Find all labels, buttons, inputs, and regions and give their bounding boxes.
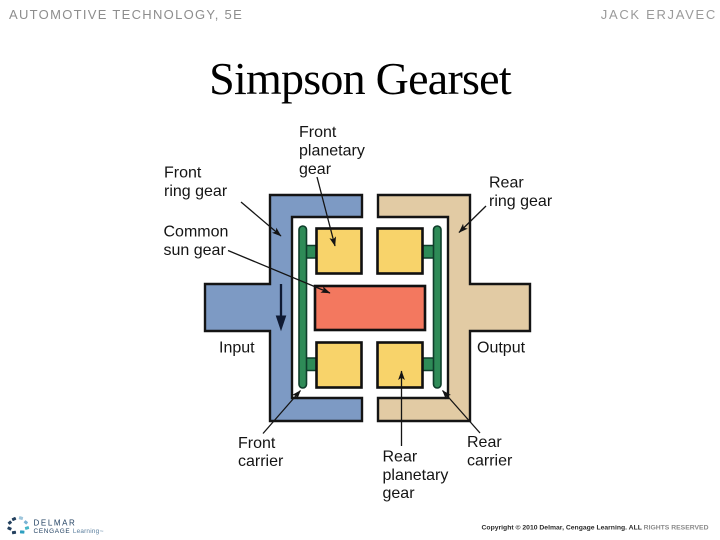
svg-text:Input: Input: [219, 340, 255, 357]
svg-text:Front: Front: [299, 124, 337, 141]
svg-text:Output: Output: [477, 340, 526, 357]
svg-text:CENGAGE Learning™: CENGAGE Learning™: [34, 528, 105, 535]
svg-text:sun gear: sun gear: [164, 242, 227, 259]
svg-text:gear: gear: [383, 485, 416, 502]
svg-text:Rear: Rear: [489, 175, 524, 192]
svg-text:Copyright © 2010 Delmar, Cenga: Copyright © 2010 Delmar, Cengage Learnin…: [482, 524, 709, 532]
svg-text:Rear: Rear: [467, 434, 502, 451]
svg-text:ring gear: ring gear: [489, 193, 553, 210]
svg-text:ring gear: ring gear: [164, 183, 228, 200]
svg-text:Common: Common: [164, 224, 229, 241]
svg-text:Front: Front: [238, 435, 276, 452]
svg-text:Rear: Rear: [383, 449, 418, 466]
svg-text:DELMAR: DELMAR: [34, 519, 77, 528]
svg-text:gear: gear: [299, 161, 332, 178]
svg-text:carrier: carrier: [467, 453, 513, 470]
svg-text:planetary: planetary: [299, 143, 365, 160]
svg-text:Front: Front: [164, 165, 202, 182]
svg-text:planetary: planetary: [383, 467, 449, 484]
svg-text:carrier: carrier: [238, 453, 284, 470]
